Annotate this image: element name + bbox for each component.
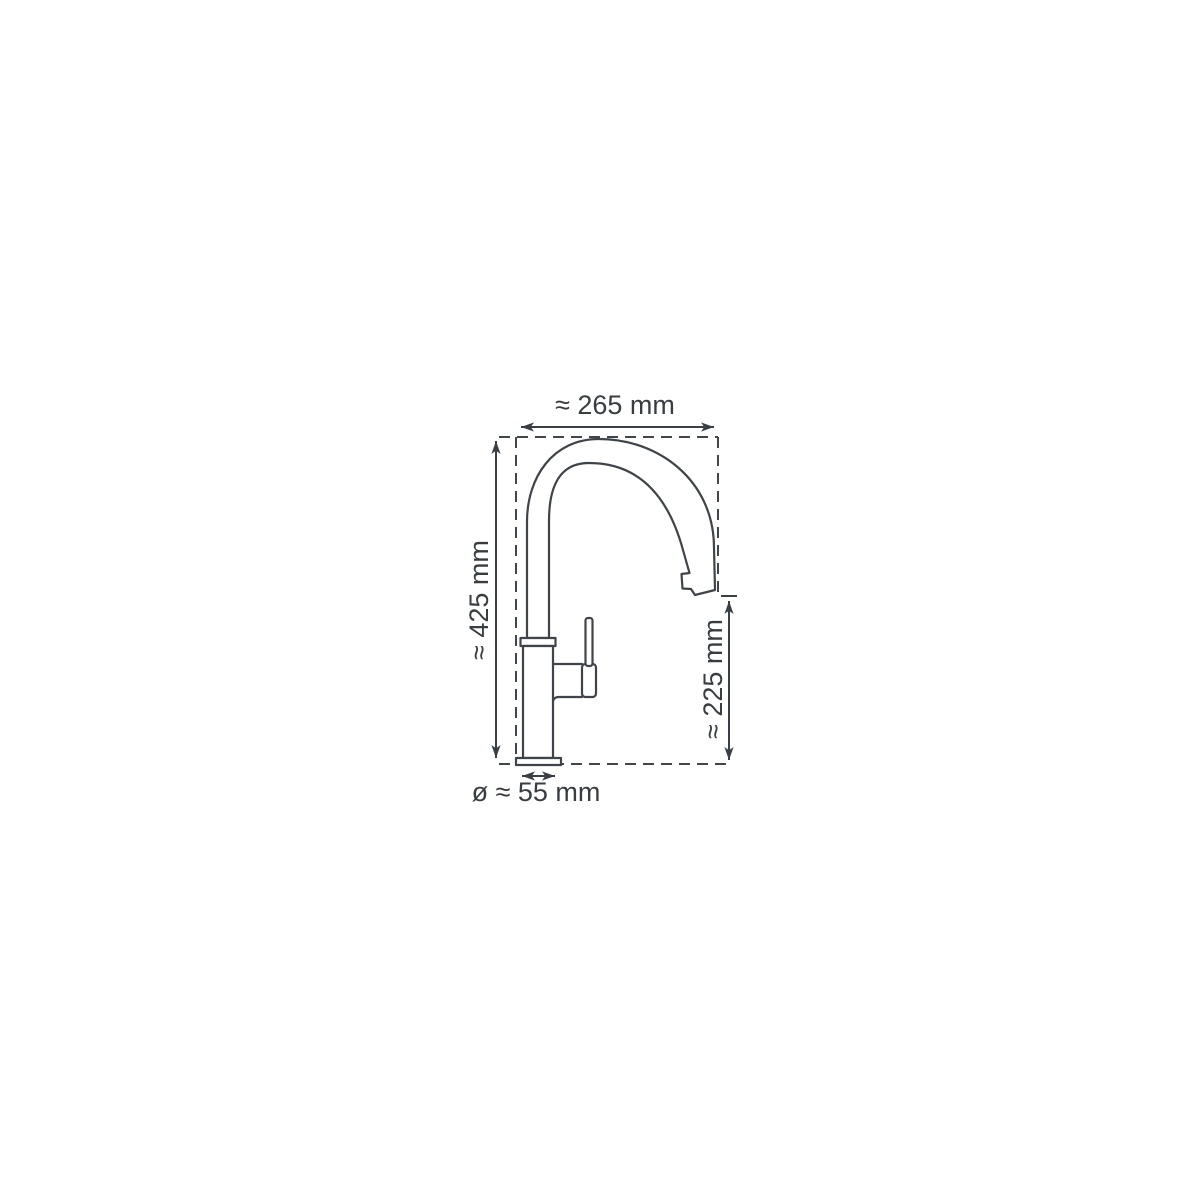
spout-arch xyxy=(527,439,715,638)
faucet-technical-drawing: ≈ 265 mm ≈ 425 mm ≈ 225 mm ø ≈ 55 mm xyxy=(0,0,1200,1200)
handle-housing xyxy=(582,664,596,697)
faucet-outline xyxy=(516,439,715,765)
label-base-diameter: ø ≈ 55 mm xyxy=(472,777,601,807)
mounting-collar xyxy=(521,638,556,646)
label-spout-width: ≈ 265 mm xyxy=(555,390,675,420)
label-total-height: ≈ 425 mm xyxy=(464,540,494,660)
label-outlet-height: ≈ 225 mm xyxy=(698,619,728,739)
side-joint-bottom xyxy=(553,697,582,701)
handle-lever xyxy=(586,618,593,666)
dimension-diagram: ≈ 265 mm ≈ 425 mm ≈ 225 mm ø ≈ 55 mm xyxy=(0,0,1200,1200)
faucet-body xyxy=(523,646,553,758)
base-flange xyxy=(516,758,561,765)
